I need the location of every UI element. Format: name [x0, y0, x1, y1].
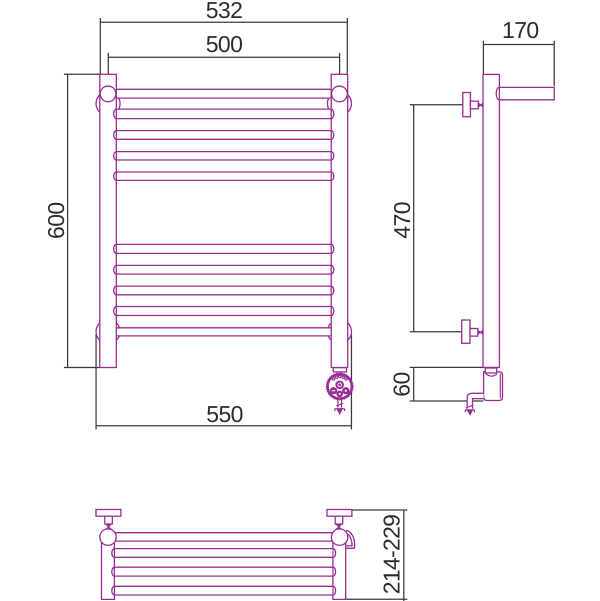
- svg-text:500: 500: [206, 31, 243, 57]
- svg-text:170: 170: [502, 17, 539, 43]
- svg-text:214-229: 214-229: [379, 515, 405, 595]
- svg-text:600: 600: [43, 202, 69, 239]
- svg-text:60: 60: [388, 372, 414, 396]
- svg-text:550: 550: [206, 401, 243, 427]
- svg-text:532: 532: [206, 0, 243, 23]
- svg-text:470: 470: [389, 202, 415, 239]
